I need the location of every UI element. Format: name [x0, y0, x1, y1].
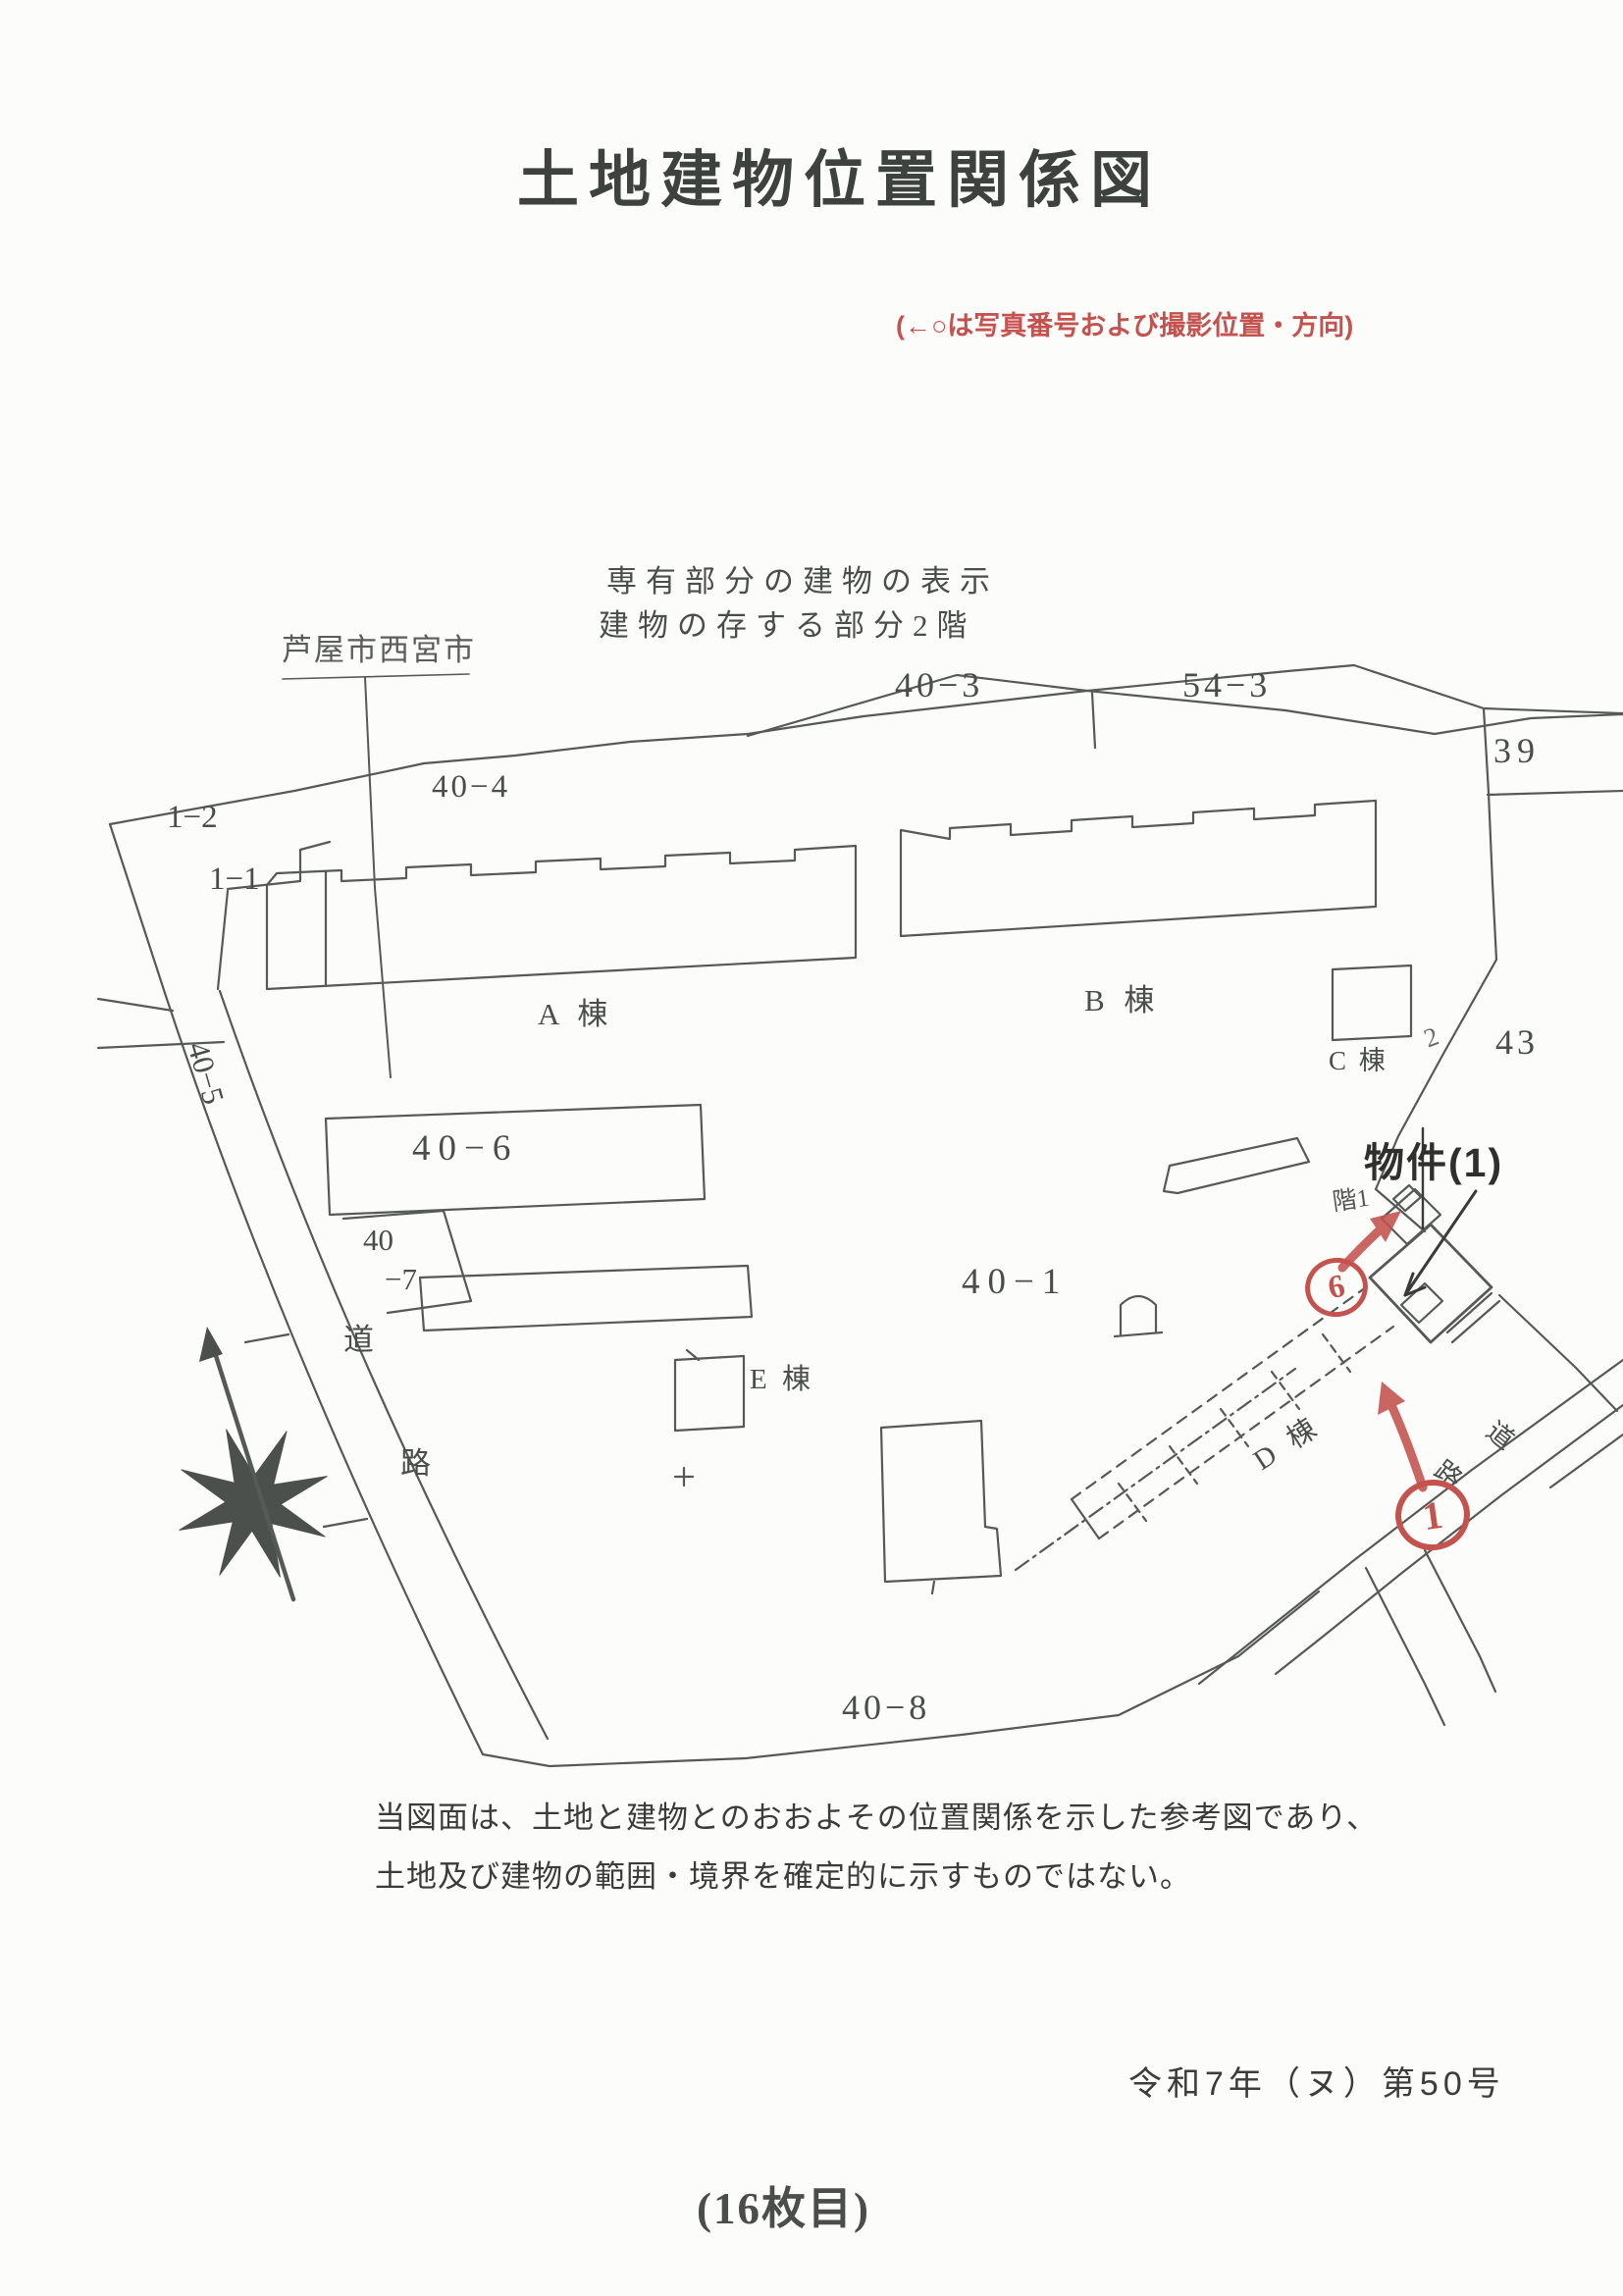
building-label-b: B 棟: [1084, 983, 1160, 1018]
property-label: 物件(1): [1364, 1140, 1503, 1186]
floor-note: 階1: [1331, 1185, 1371, 1219]
sheet-number: (16枚目): [697, 2184, 870, 2235]
lot-label-40-4: 40−4: [432, 769, 510, 807]
disclaimer-line1: 当図面は、土地と建物とのおおよその位置関係を示した参考図であり、: [375, 1800, 1378, 1836]
disclaimer-line2: 土地及び建物の範囲・境界を確定的に示すものではない。: [375, 1859, 1191, 1895]
city-boundary-label: 芦屋市西宮市: [282, 633, 476, 668]
lot-label-40-8: 40−8: [842, 1688, 930, 1728]
building-label-a: A 棟: [538, 997, 613, 1032]
page-title: 土地建物位置関係図: [517, 145, 1162, 216]
lot-label-40-7-bottom: −7: [385, 1262, 417, 1297]
photo-arrow-1: [1378, 1382, 1423, 1487]
lot-label-1-2: 1−2: [167, 800, 218, 837]
exclusive-note-line2: 建物の存する部分2階: [599, 608, 976, 644]
photo-legend-note: (←○は写真番号および撮影位置・方向): [896, 311, 1353, 341]
lot-label-40-6: 40−6: [412, 1128, 518, 1171]
building-outlines: [267, 801, 1499, 1593]
lot-label-1-1: 1−1: [209, 861, 260, 899]
building-label-c: C 棟: [1329, 1046, 1388, 1076]
road-label-left-2: 路: [400, 1446, 431, 1482]
lot-label-40-3: 40−3: [895, 665, 983, 705]
building-label-e: E 棟: [750, 1364, 814, 1396]
roads-linework: [98, 991, 1623, 1754]
lot-label-54-3: 54−3: [1182, 665, 1271, 705]
lot-label-43: 43: [1495, 1022, 1539, 1063]
lot-label-40-1: 40−1: [962, 1262, 1068, 1304]
photo-marker-1-number: 1: [1420, 1490, 1445, 1539]
exclusive-note-line1: 専有部分の建物の表示: [606, 564, 999, 600]
road-label-left-1: 道: [343, 1323, 374, 1358]
lot-label-39: 39: [1493, 731, 1541, 771]
lot-label-40-7-top: 40: [363, 1223, 393, 1258]
compass-rose: [152, 1402, 353, 1603]
photo-marker-6-number: 6: [1325, 1268, 1348, 1307]
scanned-document-page: 土地建物位置関係図 (←○は写真番号および撮影位置・方向) 専有部分の建物の表示…: [0, 0, 1623, 2296]
case-number: 令和7年（ヌ）第50号: [1128, 2065, 1505, 2104]
